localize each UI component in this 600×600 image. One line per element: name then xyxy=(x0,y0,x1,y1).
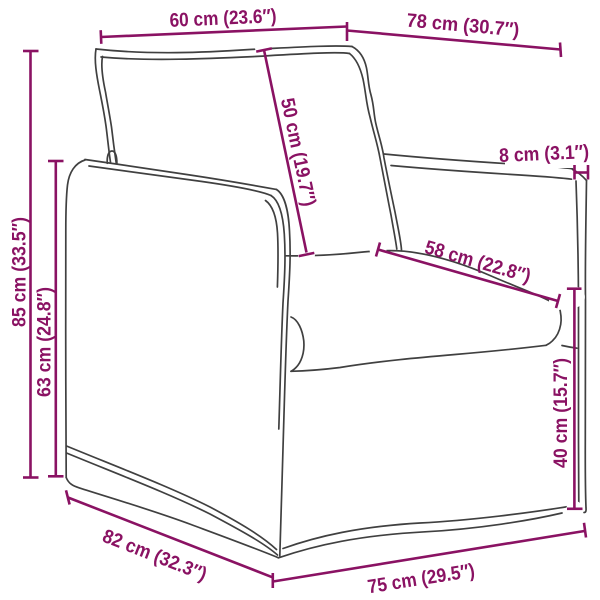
svg-text:85 cm (33.5″): 85 cm (33.5″) xyxy=(9,217,31,327)
svg-text:60 cm (23.6″): 60 cm (23.6″) xyxy=(169,5,277,32)
svg-text:63 cm (24.8″): 63 cm (24.8″) xyxy=(34,287,56,397)
svg-text:8 cm (3.1″): 8 cm (3.1″) xyxy=(499,141,590,167)
svg-text:40 cm (15.7″): 40 cm (15.7″) xyxy=(550,358,572,468)
